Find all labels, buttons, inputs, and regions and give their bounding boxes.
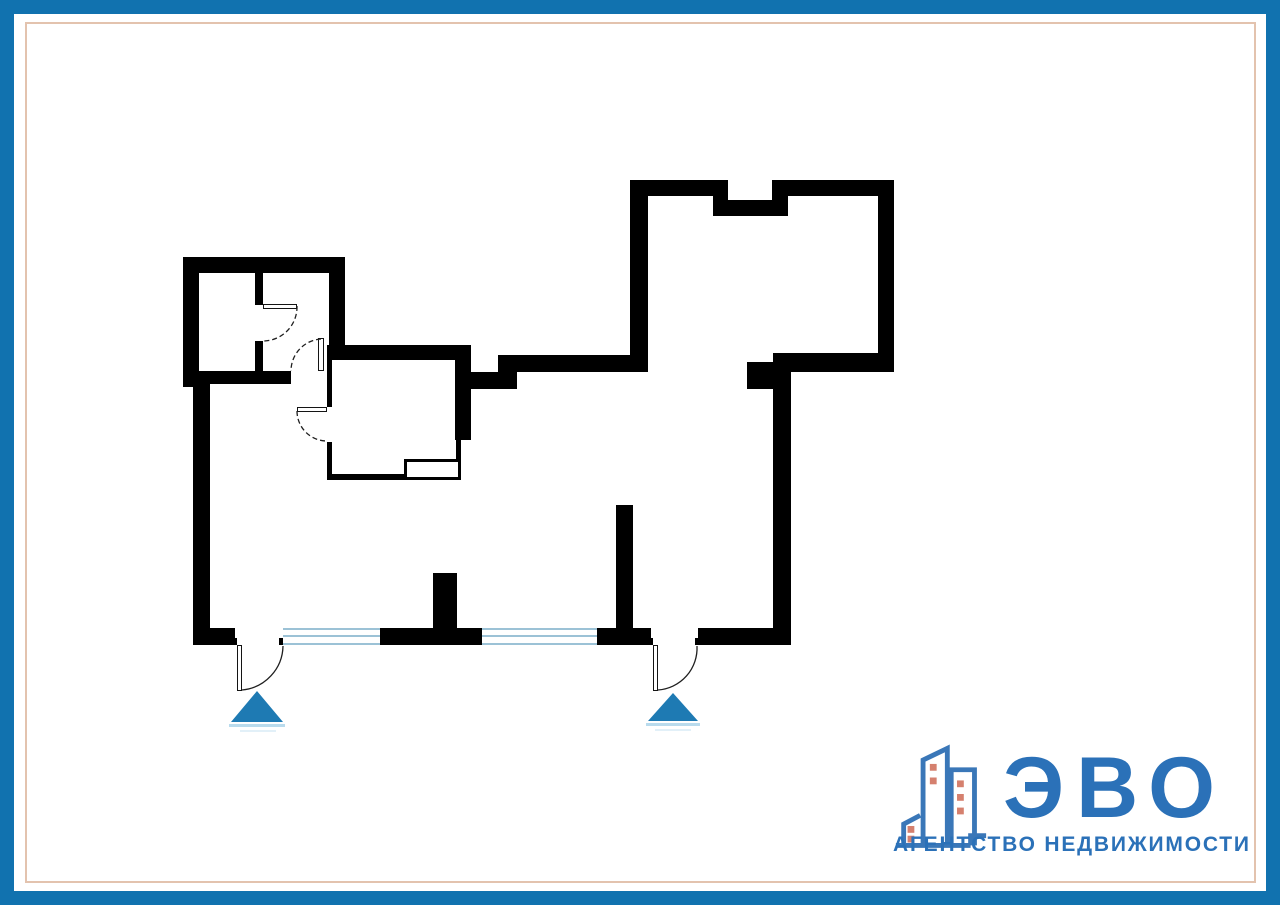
floor-plan-overlay: [0, 0, 1280, 905]
entrance-marker-underline: [229, 724, 285, 727]
entrance-marker-underline: [655, 729, 691, 731]
entrance-marker-underline: [240, 730, 276, 732]
door-swing-arc: [658, 646, 697, 690]
door-swing-arc: [263, 306, 297, 341]
page: { "page": { "frame_color": "#1172af", "i…: [0, 0, 1280, 905]
entrance-marker-triangle: [648, 693, 698, 721]
door-swing-arc: [291, 339, 321, 371]
entrance-marker-underline: [646, 723, 700, 726]
door-swing-arc: [242, 646, 283, 690]
entrance-marker-triangle: [231, 691, 283, 722]
door-swing-arc: [297, 411, 327, 441]
